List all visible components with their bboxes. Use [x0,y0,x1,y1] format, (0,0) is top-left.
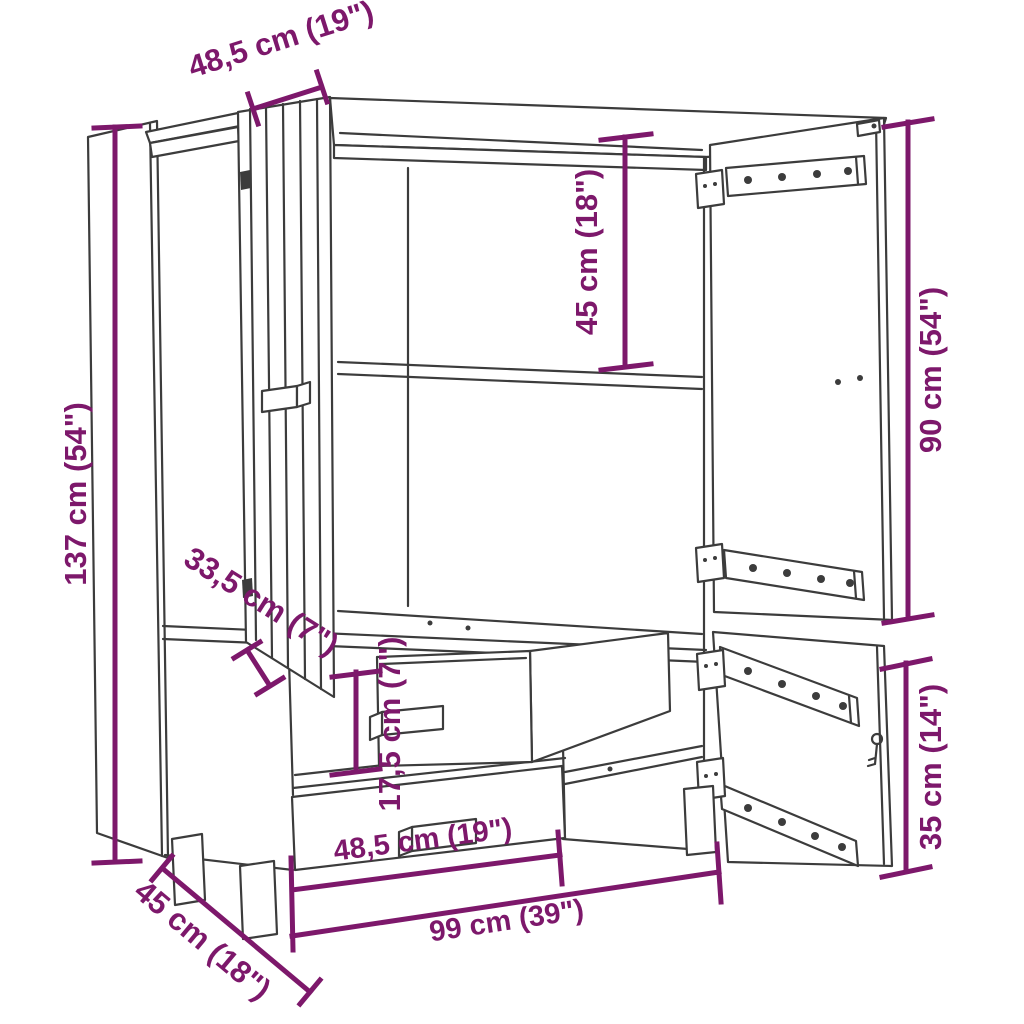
diagram-canvas: 137 cm (54") 48,5 cm (19") 45 cm (18") 9… [0,0,1024,1024]
dim-label-lower-door-height: 35 cm (14") [913,684,948,850]
dim-label-inner-height: 45 cm (18") [569,169,604,335]
lower-right-door [697,632,892,866]
hinge-mid [696,544,724,582]
dim-inner-height: 45 cm (18") [569,134,651,370]
hinge-lower-top [697,650,725,690]
dim-label-right-door-height: 90 cm (54") [913,287,948,453]
upper-right-door [696,118,892,620]
dim-label-total-height: 137 cm (54") [58,402,93,586]
left-door-handle [262,386,297,412]
dim-label-drawer-height: 17,5 cm (7") [372,637,407,812]
dim-line [601,134,651,370]
hinge-mark-top [240,170,251,190]
dim-label-door-width-top: 48,5 cm (19") [184,0,378,85]
upper-drawer [370,633,670,766]
wardrobe-line-art [88,97,892,939]
wardrobe-dimension-diagram: 137 cm (54") 48,5 cm (19") 45 cm (18") 9… [0,0,1024,1024]
left-side-panel [88,121,168,858]
hinge-top [696,170,724,208]
dim-right-door-height: 90 cm (54") [884,119,948,623]
